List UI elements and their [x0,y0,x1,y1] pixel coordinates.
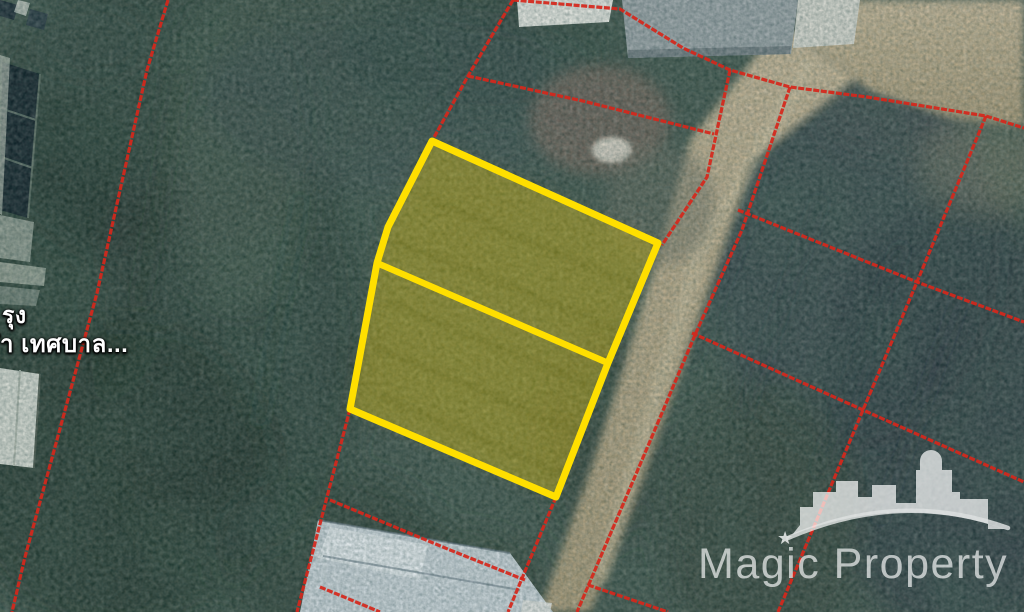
city-skyline-icon: ★ Magic Property [688,445,1024,605]
map-place-label-line2: ำ เทศบาล... [0,330,128,360]
map-place-label: รุง ำ เทศบาล... [0,300,128,360]
map-place-label-line1: รุง [0,300,128,330]
watermark-brand-text: Magic Property [698,540,1008,588]
satellite-map: รุง ำ เทศบาล... ★ Magic Property [0,0,1024,612]
watermark-logo: ★ Magic Property [688,445,1024,605]
